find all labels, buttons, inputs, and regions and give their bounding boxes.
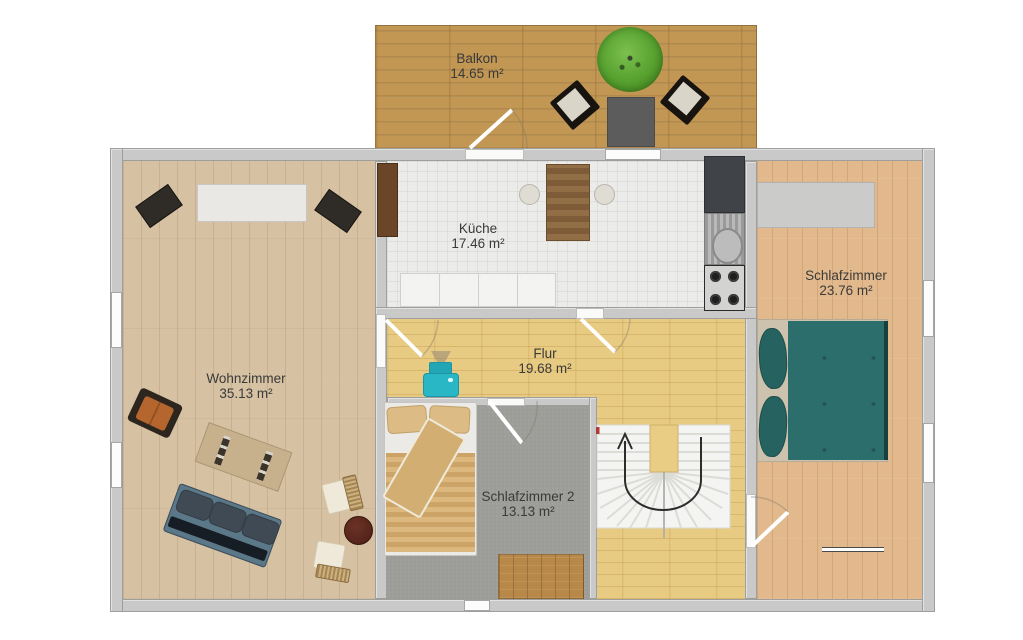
- floor-plan: Balkon 14.65 m² Küche 17.46 m² Wohnzimme…: [0, 0, 1023, 640]
- kitchen-hall-door-leaf: [581, 319, 615, 352]
- staircase: [596, 425, 730, 538]
- room-name: Flur: [518, 346, 571, 361]
- room-area: 17.46 m²: [451, 236, 504, 251]
- balcony-door-leaf: [470, 110, 512, 148]
- room-label-kueche: Küche 17.46 m²: [451, 221, 504, 251]
- room-name: Wohnzimmer: [206, 371, 285, 386]
- room-name: Balkon: [450, 51, 503, 66]
- room-area: 13.13 m²: [481, 504, 574, 519]
- plan-overlay: [0, 0, 1023, 640]
- room-label-schlafzimmer: Schlafzimmer 23.76 m²: [805, 268, 887, 298]
- room-area: 35.13 m²: [206, 386, 285, 401]
- room-label-wohnzimmer: Wohnzimmer 35.13 m²: [206, 371, 285, 401]
- room-name: Schlafzimmer: [805, 268, 887, 283]
- room-label-schlafzimmer2: Schlafzimmer 2 13.13 m²: [481, 489, 574, 519]
- room-label-flur: Flur 19.68 m²: [518, 346, 571, 376]
- bedroom2-door-leaf: [489, 401, 522, 443]
- stairwell-void: [650, 425, 678, 472]
- living-hall-door-leaf: [386, 320, 422, 356]
- room-name: Schlafzimmer 2: [481, 489, 574, 504]
- room-area: 14.65 m²: [450, 66, 503, 81]
- room-area: 23.76 m²: [805, 283, 887, 298]
- room-name: Küche: [451, 221, 504, 236]
- bedroom-door-leaf: [752, 512, 788, 546]
- room-area: 19.68 m²: [518, 361, 571, 376]
- room-label-balkon: Balkon 14.65 m²: [450, 51, 503, 81]
- stair-marker: [596, 427, 600, 434]
